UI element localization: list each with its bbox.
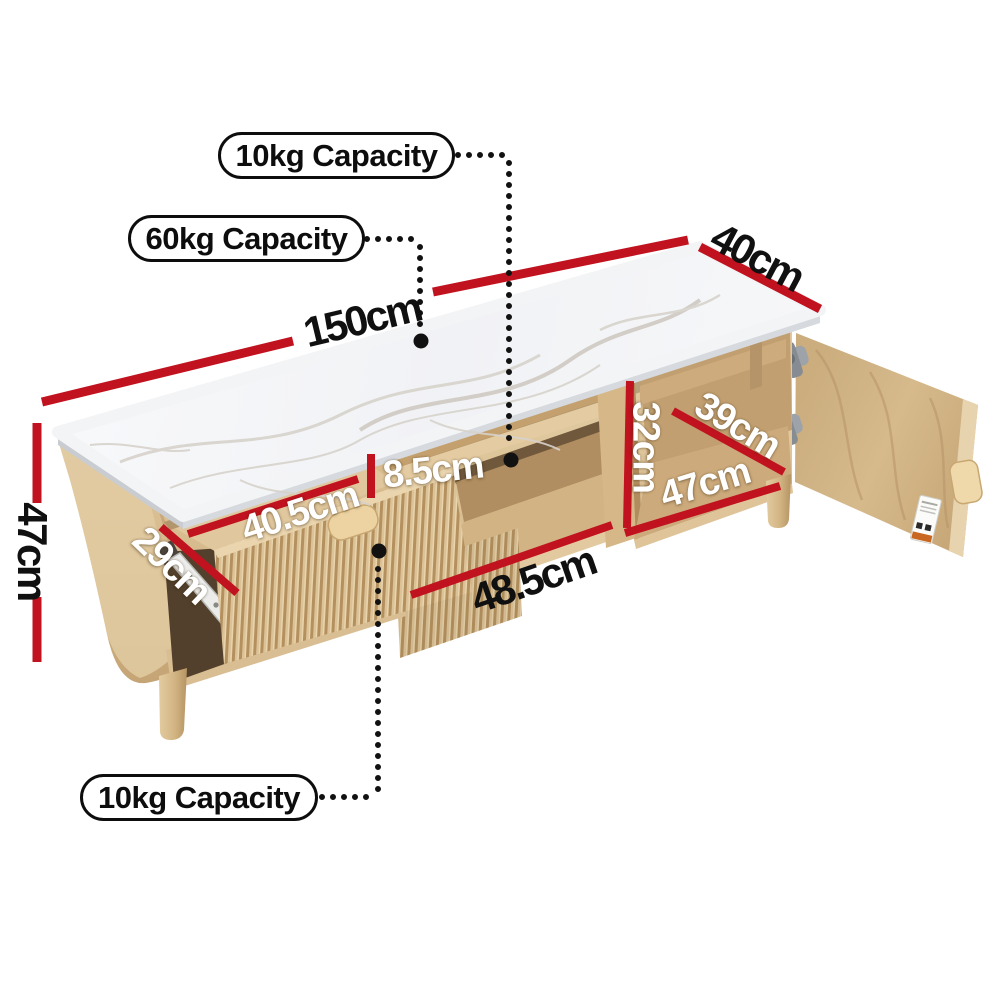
front-left-leg: [159, 668, 187, 740]
capacity-badge-top: 10kg Capacity: [218, 132, 455, 179]
furniture-illustration: [0, 0, 1000, 1000]
leader-dot-mid: [414, 334, 429, 349]
capacity-badge-top-label: 10kg Capacity: [236, 138, 438, 174]
cabinet-door-open: [767, 333, 984, 557]
capacity-badge-middle: 60kg Capacity: [128, 215, 365, 262]
dim-label-overall-height: 47cm: [8, 502, 56, 599]
capacity-badge-bottom-label: 10kg Capacity: [98, 780, 300, 816]
leader-dot-bottom: [372, 544, 387, 559]
capacity-badge-bottom: 10kg Capacity: [80, 774, 318, 821]
product-dimension-diagram: 10kg Capacity 60kg Capacity 10kg Capacit…: [0, 0, 1000, 1000]
leader-dot-top: [504, 453, 519, 468]
front-right-leg: [766, 474, 791, 528]
capacity-badge-middle-label: 60kg Capacity: [146, 221, 348, 257]
